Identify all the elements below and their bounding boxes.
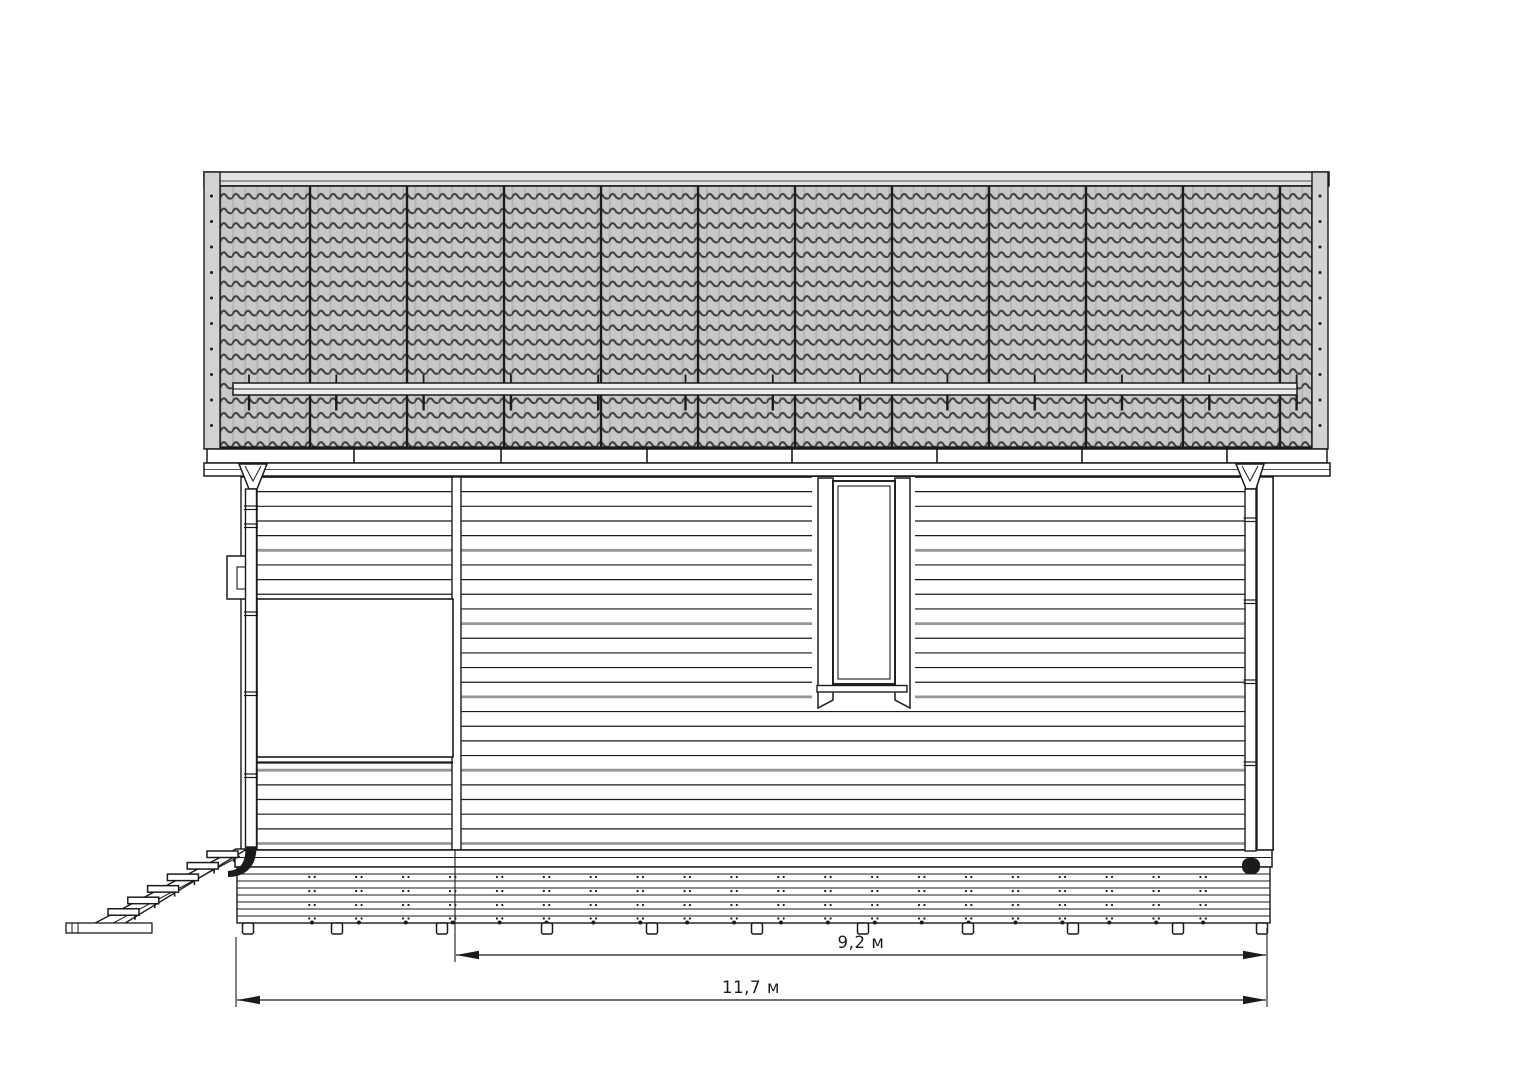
house-side-elevation: 9,2 м 11,7 м [0,0,1528,1080]
foundation-piles [235,850,1272,934]
eaves-fascia [204,449,1330,476]
window [812,477,915,710]
dimension-label-9-2: 9,2 м [838,933,885,952]
roof [204,172,1329,449]
entrance-stairs [66,849,247,933]
elevation-drawing-canvas: 9,2 м 11,7 м [0,0,1528,1080]
dimension-label-11-7: 11,7 м [722,978,780,997]
